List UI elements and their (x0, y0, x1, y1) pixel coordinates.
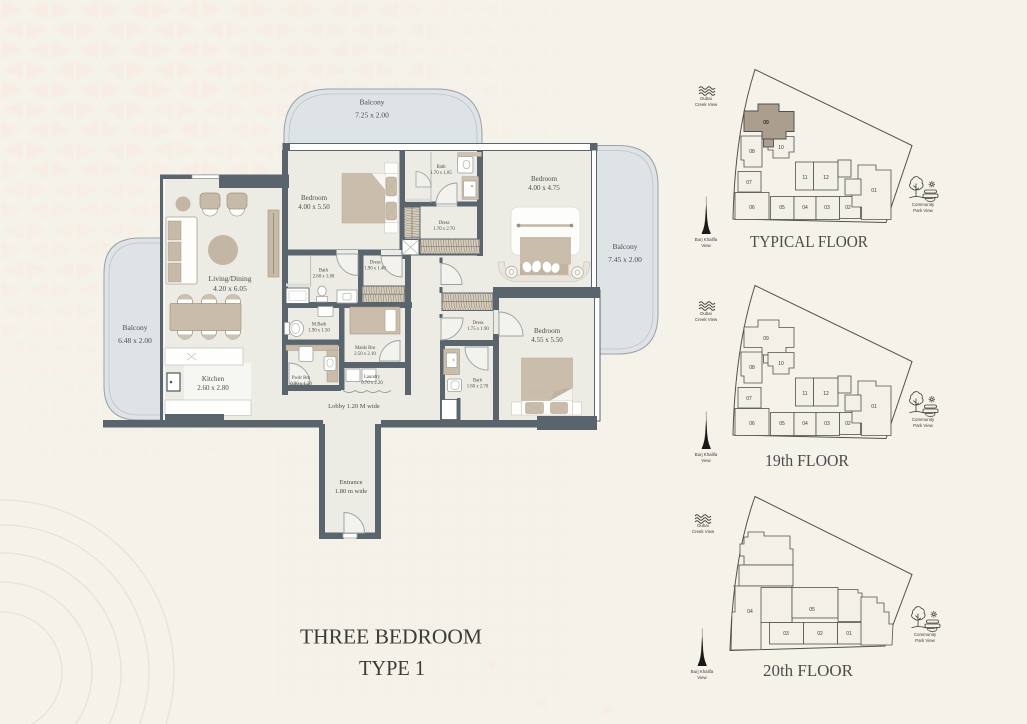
svg-text:Bedroom: Bedroom (301, 194, 328, 202)
svg-text:Bath: Bath (319, 269, 329, 274)
svg-text:2.60 x 1.80: 2.60 x 1.80 (313, 275, 335, 280)
svg-text:View: View (701, 243, 711, 248)
svg-text:Creek View: Creek View (692, 529, 715, 534)
svg-text:1.90 x 1.50: 1.90 x 1.50 (308, 329, 330, 334)
svg-text:Living/Dining: Living/Dining (209, 274, 252, 283)
svg-text:2.50 x 2.10: 2.50 x 2.10 (354, 352, 376, 357)
svg-text:Burj Khalifa: Burj Khalifa (691, 669, 714, 674)
svg-text:1.70 x 2.70: 1.70 x 2.70 (433, 227, 455, 232)
svg-text:03: 03 (783, 631, 789, 637)
svg-text:0.70 x 2.20: 0.70 x 2.20 (361, 381, 383, 386)
svg-text:View: View (697, 675, 707, 680)
svg-text:Dubai: Dubai (700, 96, 711, 101)
svg-text:6.48 x 2.00: 6.48 x 2.00 (118, 336, 152, 345)
svg-text:4.00 x 5.50: 4.00 x 5.50 (298, 203, 330, 211)
svg-text:05: 05 (809, 607, 815, 613)
svg-text:Burj Khalifa: Burj Khalifa (695, 452, 718, 457)
svg-text:2.60 x 2.80: 2.60 x 2.80 (197, 384, 229, 392)
svg-text:TYPICAL FLOOR: TYPICAL FLOOR (750, 232, 868, 251)
svg-text:Dress: Dress (370, 261, 381, 266)
svg-text:Community: Community (912, 417, 935, 422)
svg-text:THREE BEDROOM: THREE BEDROOM (300, 625, 482, 649)
svg-text:1.75 x 1.90: 1.75 x 1.90 (467, 327, 489, 332)
svg-text:1.80 x 2.70: 1.80 x 2.70 (467, 385, 489, 390)
svg-text:1.90 x 1.40: 1.90 x 1.40 (364, 267, 386, 272)
svg-text:0.90 x 1.20: 0.90 x 1.20 (290, 382, 312, 387)
svg-text:M.Bath: M.Bath (312, 323, 327, 328)
svg-text:Pwdr Rm: Pwdr Rm (292, 376, 311, 381)
svg-text:4.00 x 4.75: 4.00 x 4.75 (528, 184, 560, 192)
svg-text:Dubai: Dubai (700, 311, 711, 316)
svg-text:Dress: Dress (473, 321, 484, 326)
svg-text:09: 09 (763, 120, 769, 126)
svg-text:7.25 x 2.00: 7.25 x 2.00 (355, 111, 389, 120)
svg-text:Bedroom: Bedroom (531, 175, 558, 183)
svg-text:Balcony: Balcony (360, 98, 385, 107)
svg-text:4.20 x 6.05: 4.20 x 6.05 (213, 284, 247, 293)
svg-text:20th FLOOR: 20th FLOOR (763, 661, 853, 680)
svg-text:Balcony: Balcony (613, 242, 638, 251)
svg-text:Burj Khalifa: Burj Khalifa (695, 237, 718, 242)
svg-text:Park View: Park View (913, 423, 934, 428)
svg-text:Creek View: Creek View (695, 317, 718, 322)
svg-text:Park View: Park View (915, 638, 936, 643)
svg-text:Park View: Park View (913, 208, 934, 213)
svg-text:19th FLOOR: 19th FLOOR (765, 451, 849, 470)
svg-text:1.70 x 1.85: 1.70 x 1.85 (430, 171, 452, 176)
svg-text:Bath: Bath (473, 379, 483, 384)
svg-text:01: 01 (846, 631, 852, 637)
svg-text:Lobby 1.20 M wide: Lobby 1.20 M wide (328, 403, 380, 410)
svg-text:Dubai: Dubai (697, 523, 708, 528)
svg-text:Maids Rm: Maids Rm (355, 346, 375, 351)
svg-text:Bedroom: Bedroom (534, 327, 561, 335)
svg-text:View: View (701, 458, 711, 463)
svg-text:Dress: Dress (439, 221, 450, 226)
svg-text:4.55 x 5.50: 4.55 x 5.50 (531, 336, 563, 344)
svg-text:Bath: Bath (436, 165, 446, 170)
svg-text:Balcony: Balcony (123, 323, 148, 332)
svg-text:TYPE 1: TYPE 1 (359, 656, 425, 680)
svg-text:1.80 m wide: 1.80 m wide (335, 488, 367, 495)
svg-text:7.45 x 2.00: 7.45 x 2.00 (608, 255, 642, 264)
svg-text:Entrance: Entrance (339, 479, 362, 486)
svg-text:Community: Community (912, 202, 935, 207)
svg-text:02: 02 (817, 631, 823, 637)
svg-text:Community: Community (914, 632, 937, 637)
svg-text:Kitchen: Kitchen (202, 375, 225, 383)
svg-text:Laundry: Laundry (364, 375, 381, 380)
svg-text:Creek View: Creek View (695, 102, 718, 107)
svg-text:04: 04 (747, 609, 753, 615)
